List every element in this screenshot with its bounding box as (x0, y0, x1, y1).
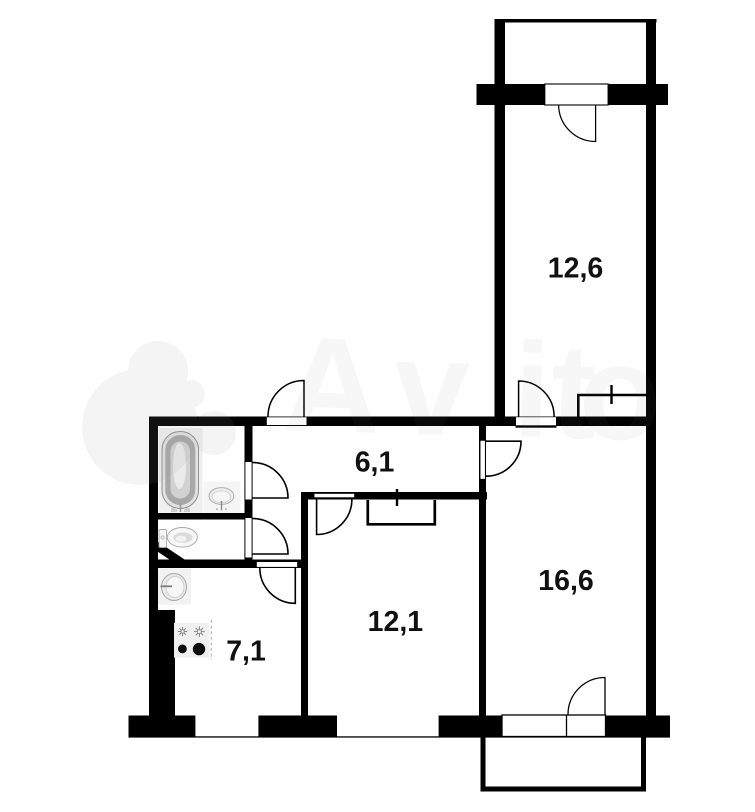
svg-text:16,6: 16,6 (538, 565, 593, 597)
svg-text:i: i (511, 314, 552, 466)
svg-text:7,1: 7,1 (226, 636, 266, 668)
svg-text:v: v (392, 311, 471, 464)
svg-text:A: A (281, 308, 382, 462)
svg-text:12,1: 12,1 (368, 606, 424, 638)
svg-text:12,6: 12,6 (548, 253, 603, 285)
svg-text:o: o (577, 316, 663, 469)
